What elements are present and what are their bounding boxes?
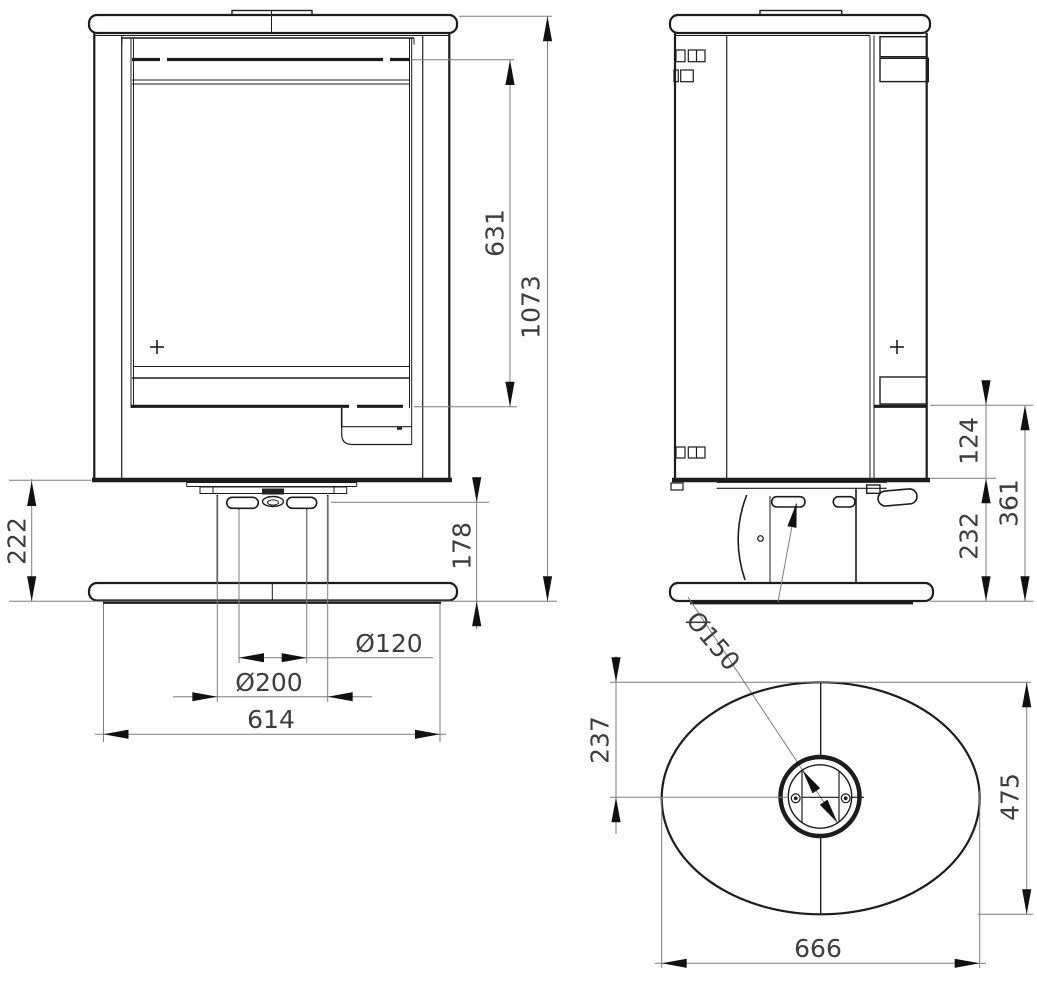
front-top-plate <box>89 15 457 33</box>
arrow-150-side <box>787 502 801 528</box>
arrow-475-bottom <box>1022 889 1031 914</box>
arrow-120-left <box>239 653 264 662</box>
dim-label-150: Ø150 <box>680 606 746 676</box>
side-front-band-2 <box>880 58 928 81</box>
plate-step <box>671 483 683 490</box>
arrow-1073-bottom <box>543 576 552 601</box>
front-dimensions: 222 178 631 1073 Ø120 Ø200 614 <box>3 16 558 742</box>
dim-label-222: 222 <box>3 517 32 565</box>
dim-label-200: Ø200 <box>235 668 302 697</box>
arrow-150-lower <box>820 800 842 826</box>
side-front-band-1 <box>880 37 927 57</box>
arrow-1073-top <box>543 16 552 41</box>
front-pedestal <box>187 483 357 584</box>
dim-label-237: 237 <box>586 716 615 764</box>
pedestal-slot-left <box>227 497 259 508</box>
arrow-475-top <box>1022 682 1031 707</box>
screw-dot <box>794 796 798 800</box>
column-front-arc <box>738 495 747 580</box>
arrow-120-right <box>282 653 307 662</box>
pedestal-slot-b <box>833 497 855 507</box>
vent <box>676 447 685 458</box>
drawing-page: 222 178 631 1073 Ø120 Ø200 614 <box>0 0 1037 981</box>
vent <box>676 50 685 62</box>
arrow-361-bottom <box>1020 576 1029 601</box>
side-pedestal <box>671 482 918 583</box>
side-front-lower-box <box>880 377 927 404</box>
screw-dot <box>844 796 848 800</box>
dim-label-614: 614 <box>247 705 295 734</box>
pedestal-slot-a <box>772 497 805 507</box>
swivel-oval-inner <box>268 500 279 505</box>
arrow-237-bottom <box>611 797 620 822</box>
front-view <box>89 11 457 603</box>
flue-screw-right <box>841 794 850 803</box>
dim-label-475: 475 <box>996 773 1025 821</box>
stove-dimension-drawing: 222 178 631 1073 Ø120 Ø200 614 <box>0 0 1037 981</box>
arrow-232-bottom <box>981 576 990 601</box>
dim-label-631: 631 <box>481 209 510 257</box>
arrow-178-bottom <box>472 601 481 626</box>
flue-screw-left <box>791 794 800 803</box>
dim-label-1073: 1073 <box>517 275 546 339</box>
glass-plus-mark <box>150 340 164 354</box>
arrow-361-top <box>1020 405 1029 430</box>
column-screw <box>758 536 764 542</box>
dim-label-124: 124 <box>955 417 984 465</box>
side-base-plate <box>670 583 933 601</box>
swivel-block <box>262 489 284 495</box>
arrow-200-left <box>192 692 217 701</box>
arrow-178-top <box>472 477 481 502</box>
lever-mount <box>867 485 880 493</box>
dim-label-361: 361 <box>995 479 1024 527</box>
grate-lever <box>877 488 917 506</box>
side-top-plate <box>670 15 930 33</box>
arrow-200-right <box>328 692 353 701</box>
arrow-631-bottom <box>505 382 514 407</box>
arrow-222-bottom <box>27 576 36 601</box>
top-dimensions: 237 475 666 <box>586 656 1034 968</box>
top-view <box>610 682 980 914</box>
dim-label-120: Ø120 <box>355 629 422 658</box>
vent <box>681 70 694 82</box>
door-handle-recess <box>342 408 412 445</box>
arrow-124-top <box>981 380 990 405</box>
dim-label-666: 666 <box>794 934 842 963</box>
side-plus-mark <box>890 340 904 354</box>
side-view <box>670 11 933 603</box>
arrow-666-left <box>662 959 687 968</box>
arrow-631-top <box>505 60 514 85</box>
front-base-plate <box>89 583 457 601</box>
side-vents <box>674 50 705 458</box>
pedestal-slot-right <box>287 497 317 508</box>
arrow-222-top <box>27 481 36 506</box>
arrow-614-left <box>104 730 129 739</box>
arrow-666-right <box>955 959 980 968</box>
dim-label-178: 178 <box>448 522 477 570</box>
arrow-614-right <box>415 730 440 739</box>
side-top-tab <box>760 11 842 16</box>
arrow-124-bottom <box>981 478 990 503</box>
arrow-237-top <box>611 657 620 682</box>
dim-label-232: 232 <box>955 512 984 560</box>
